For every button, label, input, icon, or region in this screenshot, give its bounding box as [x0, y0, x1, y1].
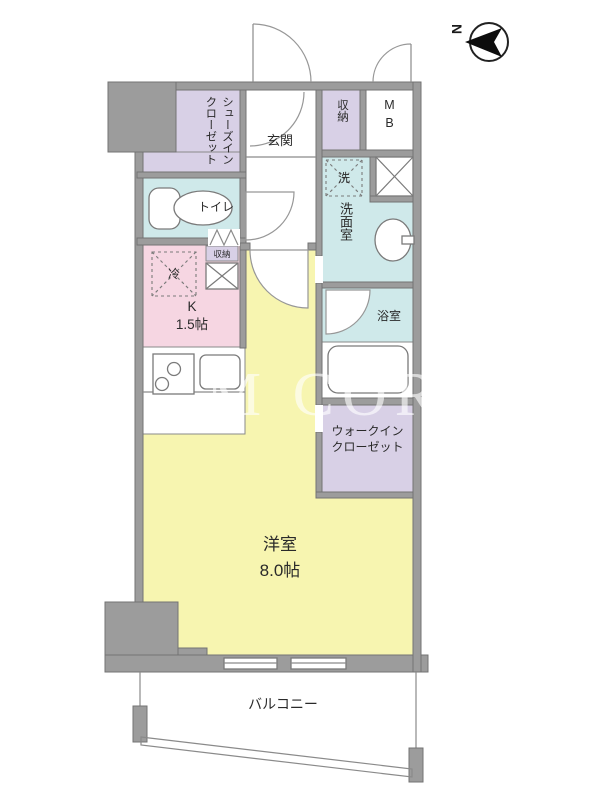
label-kitchen-storage: 収納 — [206, 249, 238, 260]
bathtub-icon — [328, 346, 408, 393]
wall-bath-bottom — [322, 398, 413, 405]
balcony-elements — [133, 658, 423, 782]
wall-top-left-block — [108, 82, 176, 152]
mb-door-arc — [373, 44, 411, 82]
stove-burner-1 — [168, 363, 181, 376]
entrance-door-arc-outside — [253, 24, 311, 82]
wall-right-column-a — [316, 90, 322, 256]
wall-left — [135, 152, 143, 604]
opening-washroom — [315, 256, 323, 283]
north-label: N — [449, 24, 465, 40]
wall-wic-bottom — [316, 492, 413, 498]
wall-storage-bottom — [322, 150, 413, 157]
wall-shaft-bottom — [370, 196, 413, 202]
label-main-room: 洋室 8.0帖 — [210, 532, 350, 585]
label-fridge: 冷 — [160, 266, 188, 282]
wall-right-column-b — [316, 283, 322, 405]
kitchen-sink-icon — [200, 355, 240, 389]
label-walk-in-closet: ウォークイン クローゼット — [322, 424, 413, 455]
label-toilet: トイレ — [188, 199, 244, 215]
floor-plan-drawing — [0, 0, 600, 800]
wall-hall-stub-left — [240, 243, 250, 250]
label-washer: 洗 — [330, 170, 358, 186]
label-shoe-closet: シューズイン クローゼット — [193, 96, 235, 248]
label-washroom: 洗面室 — [338, 202, 354, 282]
label-balcony: バルコニー — [208, 695, 358, 714]
wall-center-vertical — [240, 90, 246, 348]
washbasin-faucet-icon — [402, 236, 414, 244]
compass — [465, 23, 508, 61]
label-entrance: 玄関 — [244, 132, 316, 150]
label-bathroom: 浴室 — [364, 308, 414, 324]
wall-washroom-bottom — [322, 282, 413, 288]
balcony-railing — [141, 737, 412, 777]
wall-right — [413, 82, 421, 672]
wall-shaft-left — [370, 157, 376, 202]
label-kitchen: K 1.5帖 — [150, 298, 234, 334]
floor-plan: シューズイン クローゼット 玄関 収納 M B 洗 洗面室 トイレ 冷 収納 K… — [0, 0, 600, 800]
stove-burner-2 — [156, 378, 169, 391]
label-meter-box: M B — [366, 97, 413, 132]
label-storage: 収納 — [334, 99, 349, 149]
balcony-left-post — [133, 706, 147, 742]
